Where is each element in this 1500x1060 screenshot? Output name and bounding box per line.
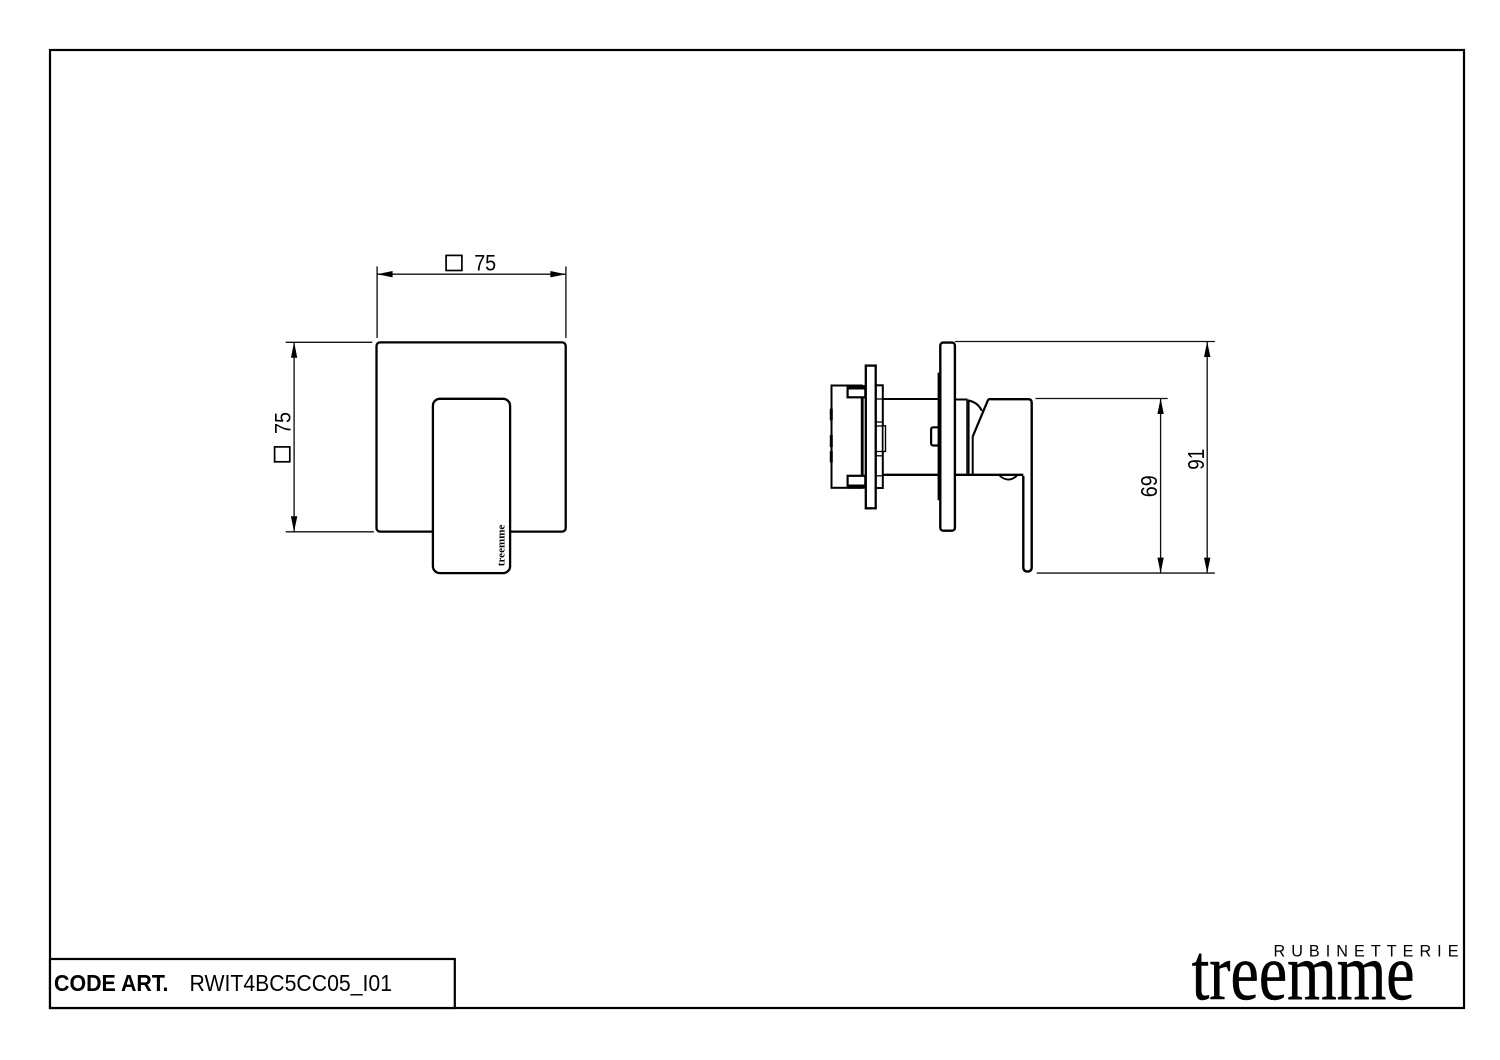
svg-text:RWIT4BC5CC05_I01: RWIT4BC5CC05_I01 <box>190 970 393 996</box>
svg-text:treemme: treemme <box>1192 927 1415 1017</box>
svg-text:treemme: treemme <box>496 525 508 567</box>
svg-text:91: 91 <box>1183 449 1209 470</box>
svg-text:CODE ART.: CODE ART. <box>54 970 169 996</box>
svg-text:69: 69 <box>1136 475 1162 497</box>
svg-text:75: 75 <box>474 251 496 276</box>
svg-text:75: 75 <box>271 412 296 434</box>
